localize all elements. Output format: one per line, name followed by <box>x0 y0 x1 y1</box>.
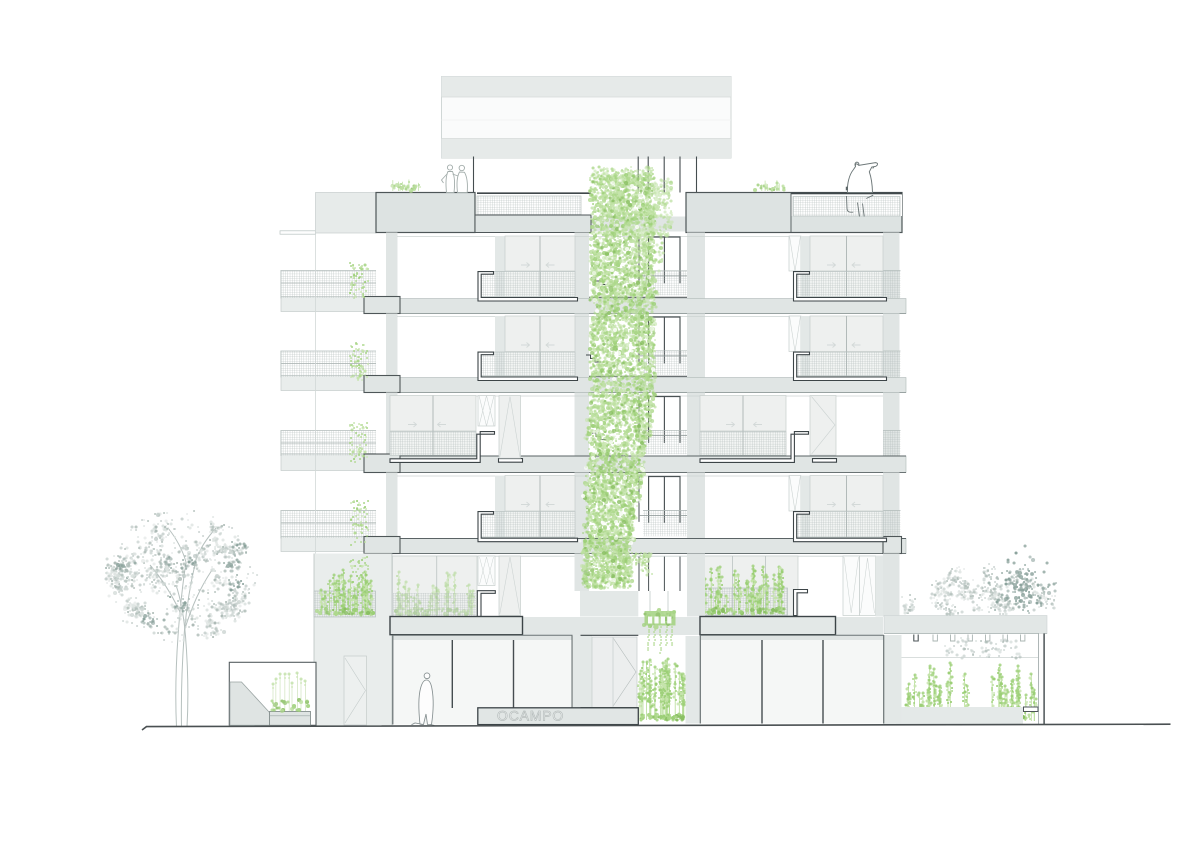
svg-text:OCAMPO: OCAMPO <box>497 708 564 724</box>
